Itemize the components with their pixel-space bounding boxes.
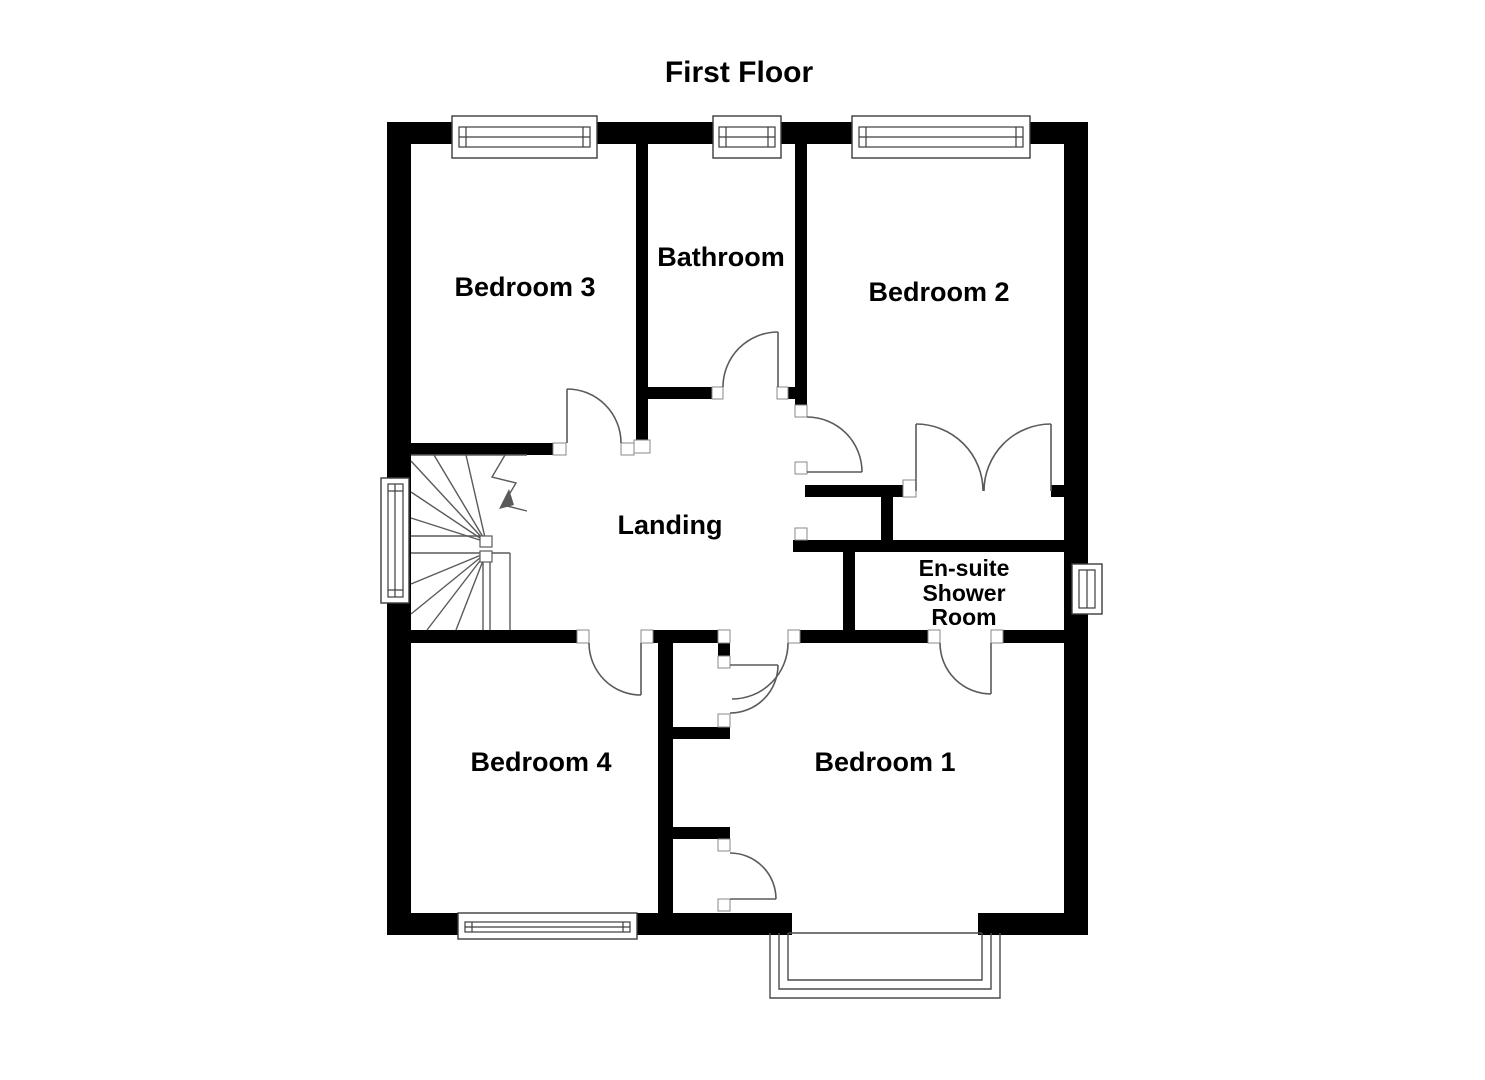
floor-plan-drawing: First Floor Bedroom 3 Bathroom Bedroom 2… — [0, 0, 1485, 1080]
ensuite-window-icon — [1072, 564, 1102, 614]
bedroom4-window-icon — [458, 913, 637, 939]
bathroom-door-icon — [723, 332, 778, 387]
bedroom2-door-icon — [807, 417, 862, 472]
bedroom1-door-icon — [732, 643, 788, 699]
cupboard-bottom-door-icon — [730, 853, 776, 899]
bedroom3-door-icon — [567, 389, 621, 443]
labels: First Floor Bedroom 3 Bathroom Bedroom 2… — [454, 56, 1009, 777]
room-label-ensuite-line1: En-suite — [919, 555, 1010, 581]
room-label-ensuite-line2: Shower — [922, 580, 1005, 606]
cupboard-top-door-icon — [730, 665, 778, 713]
room-label-bedroom2: Bedroom 2 — [868, 277, 1009, 307]
room-label-landing: Landing — [618, 510, 723, 540]
ensuite-door-icon — [940, 643, 991, 694]
wardrobe-double-door-icon — [916, 424, 1051, 491]
bathroom-window-icon — [713, 116, 781, 158]
staircase — [411, 455, 527, 630]
bedroom3-window-icon — [452, 116, 597, 158]
room-label-bathroom: Bathroom — [657, 242, 785, 272]
room-label-bedroom3: Bedroom 3 — [454, 272, 595, 302]
bedroom2-window-icon — [852, 116, 1030, 158]
room-label-ensuite-line3: Room — [931, 604, 996, 630]
page-title: First Floor — [665, 56, 814, 89]
bay-window-icon — [770, 933, 1000, 998]
windows — [381, 116, 1102, 939]
room-label-bedroom1: Bedroom 1 — [814, 747, 955, 777]
landing-window-icon — [381, 478, 409, 603]
bedroom4-door-icon — [589, 643, 641, 695]
floor-plan: First Floor Bedroom 3 Bathroom Bedroom 2… — [0, 0, 1485, 1080]
door-jambs — [553, 387, 1003, 911]
room-label-bedroom4: Bedroom 4 — [470, 747, 611, 777]
